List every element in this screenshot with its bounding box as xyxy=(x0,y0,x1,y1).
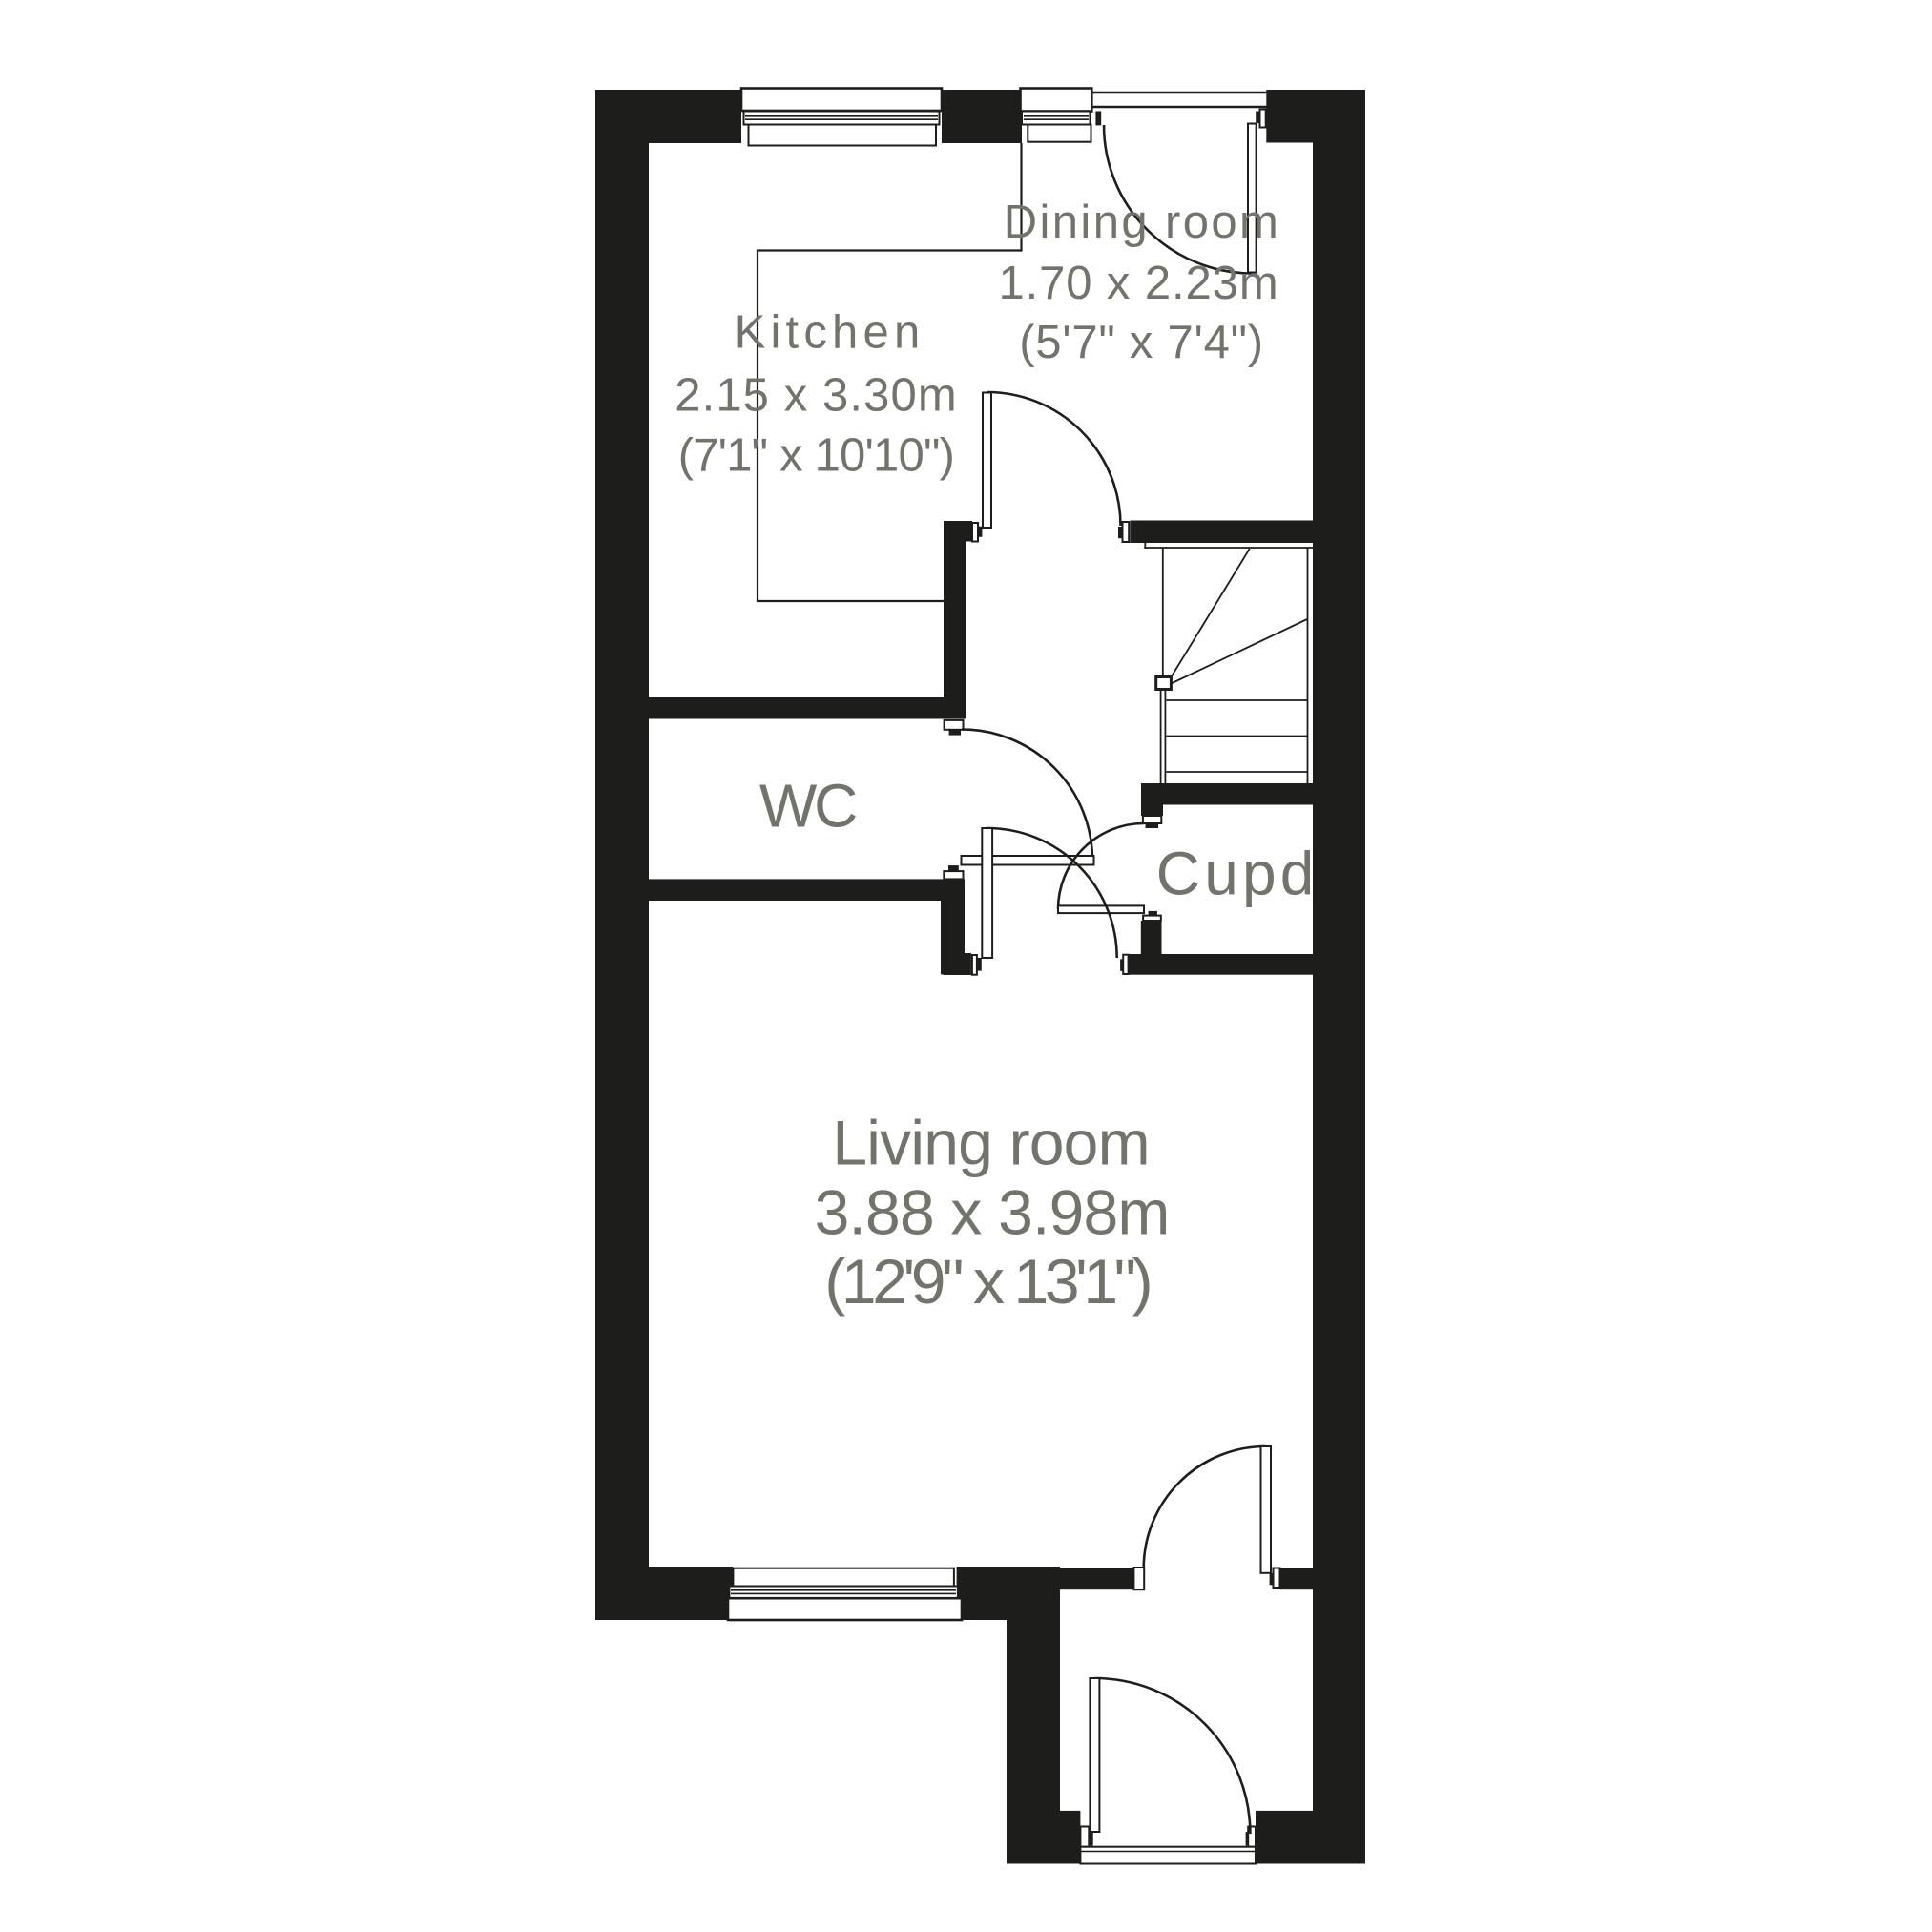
svg-text:Living room: Living room xyxy=(832,1107,1149,1177)
svg-text:WC: WC xyxy=(759,772,856,841)
svg-text:(5'7" x 7'4"): (5'7" x 7'4") xyxy=(1019,317,1264,368)
svg-text:3.88 x 3.98m: 3.88 x 3.98m xyxy=(815,1177,1170,1248)
svg-text:2.15 x 3.30m: 2.15 x 3.30m xyxy=(675,370,957,422)
svg-text:(12'9" x 13'1"): (12'9" x 13'1") xyxy=(824,1246,1149,1317)
svg-text:1.70 x 2.23m: 1.70 x 2.23m xyxy=(998,258,1278,309)
svg-text:Kitchen: Kitchen xyxy=(735,307,925,359)
svg-text:(7'1" x 10'10"): (7'1" x 10'10") xyxy=(678,430,954,482)
svg-text:Cupd: Cupd xyxy=(1156,840,1319,908)
svg-text:Dining room: Dining room xyxy=(1004,197,1281,248)
